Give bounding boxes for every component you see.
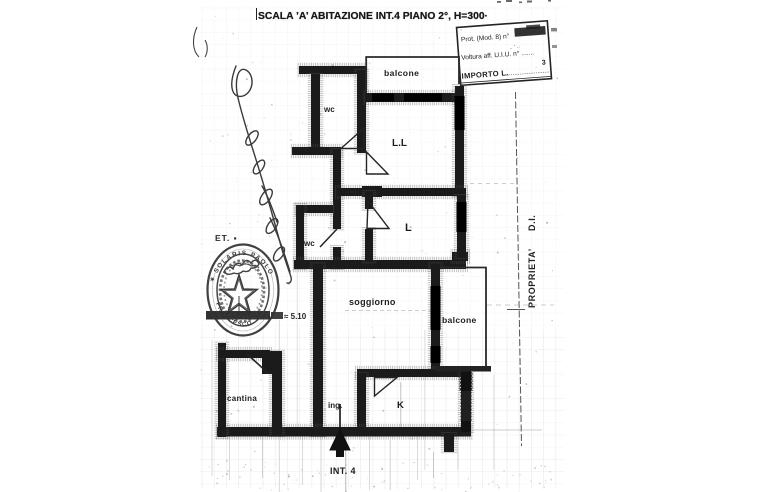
svg-text:balcone: balcone <box>384 68 419 78</box>
svg-text:cantina: cantina <box>227 394 257 403</box>
svg-text:3: 3 <box>542 60 547 67</box>
svg-text:wc: wc <box>323 105 335 114</box>
svg-text:≈ 5.10: ≈ 5.10 <box>284 312 307 321</box>
svg-text:balcone: balcone <box>442 315 477 325</box>
svg-text:.. ˇ ··: .. ˇ ·· <box>509 44 520 51</box>
svg-text:ing.: ing. <box>328 401 342 410</box>
svg-text:L: L <box>405 222 412 234</box>
svg-text:ET. ▪: ET. ▪ <box>215 233 238 243</box>
svg-text:L.L: L.L <box>392 138 407 149</box>
svg-text:INT. 4: INT. 4 <box>330 466 356 476</box>
svg-text:wc: wc <box>303 239 315 248</box>
svg-text:soggiorno: soggiorno <box>349 297 396 307</box>
svg-text:PROPRIETA’: PROPRIETA’ <box>527 248 537 308</box>
svg-text:SCALA ’A’ ABITAZIONE INT.4 PIA: SCALA ’A’ ABITAZIONE INT.4 PIANO 2°, H=3… <box>258 11 488 22</box>
svg-text:K: K <box>397 400 404 411</box>
svg-text:D.I.: D.I. <box>527 215 537 231</box>
